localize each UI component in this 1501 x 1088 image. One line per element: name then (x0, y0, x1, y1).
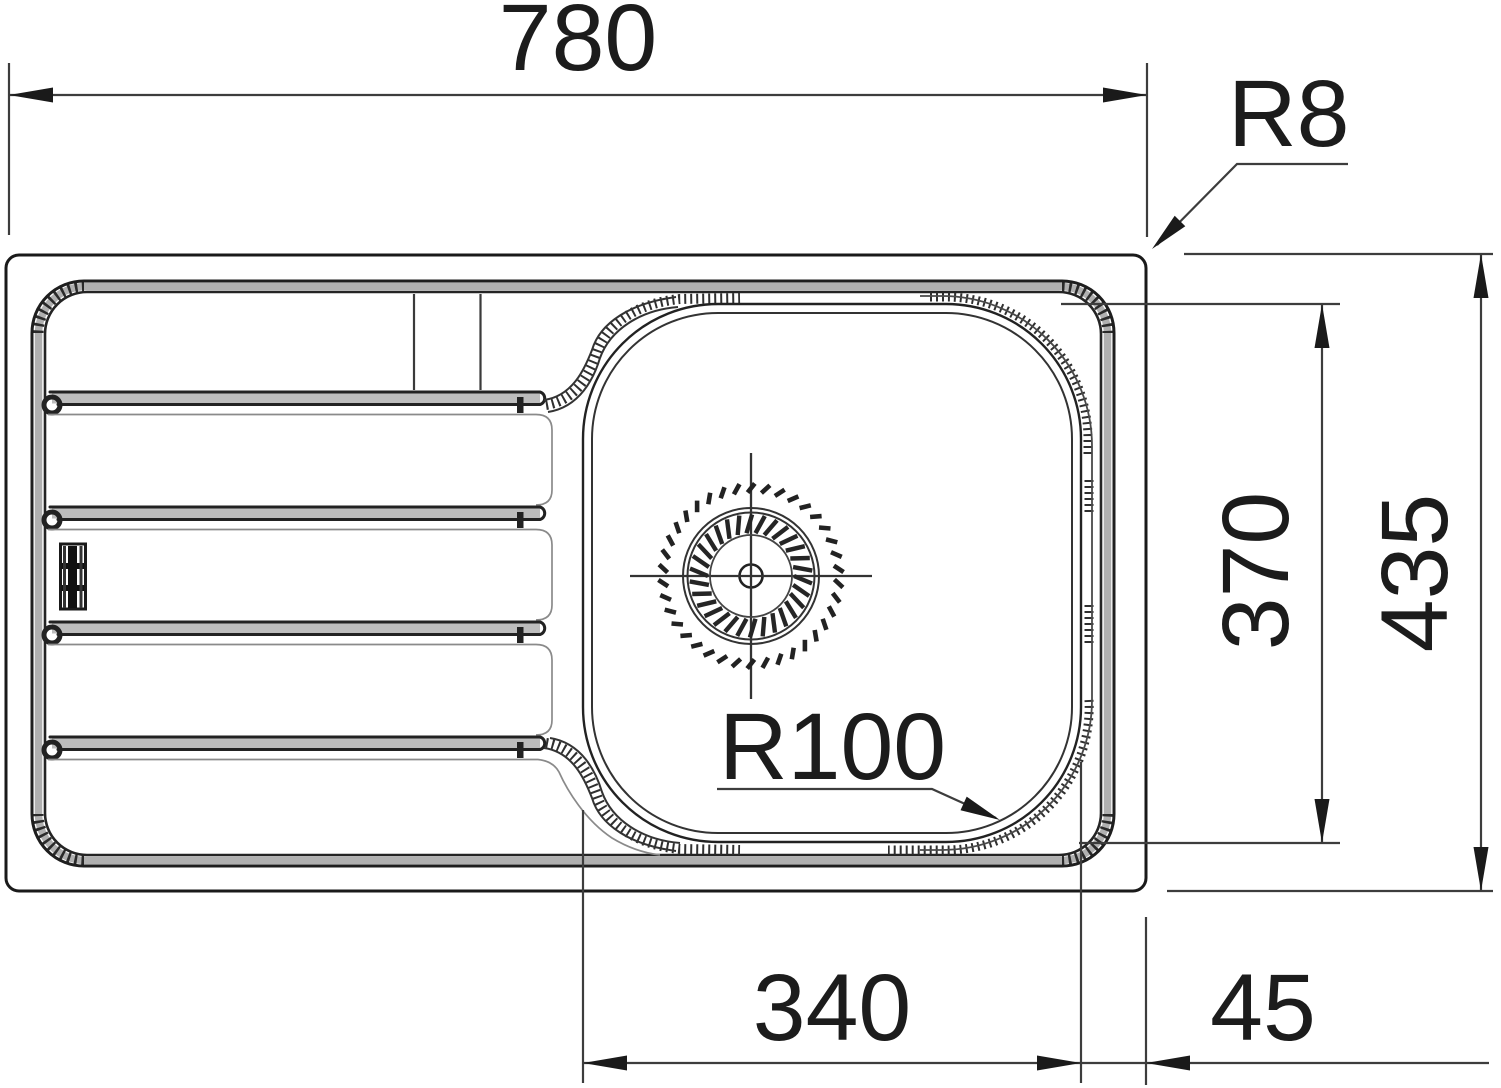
svg-text:R100: R100 (719, 694, 946, 800)
svg-text:340: 340 (753, 955, 912, 1061)
svg-text:R8: R8 (1228, 61, 1349, 167)
svg-text:370: 370 (1203, 492, 1309, 651)
svg-text:45: 45 (1210, 955, 1316, 1061)
svg-text:435: 435 (1362, 494, 1468, 653)
svg-text:780: 780 (499, 0, 658, 91)
